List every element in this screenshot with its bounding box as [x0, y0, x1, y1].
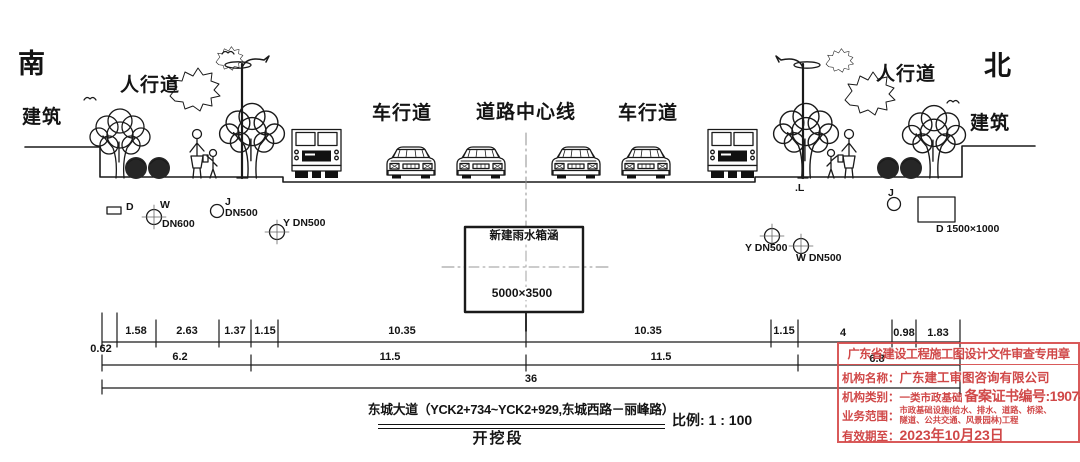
- tree-icon: [220, 103, 285, 178]
- stamp-org-value: 广东建工审图咨询有限公司: [900, 367, 1050, 386]
- dim-value: 0.62: [90, 344, 111, 356]
- stamp-class-value: 一类市政基础: [900, 390, 963, 405]
- dim-value: 10.35: [634, 326, 662, 338]
- car-icon: [457, 147, 505, 179]
- dim-value: 11.5: [380, 352, 401, 364]
- bush-icon: [125, 157, 170, 179]
- culvert-size: 5000×3500: [490, 287, 554, 300]
- label-sidewalk-right: 人行道: [876, 65, 936, 85]
- car-icon: [387, 147, 435, 179]
- car-icon: [622, 147, 670, 179]
- utility-label-y-left: Y DN500: [283, 218, 325, 229]
- stamp-valid-label: 有效期至：: [842, 428, 900, 444]
- bird-icon: [222, 51, 234, 54]
- utility-label-w-right: W DN500: [796, 253, 842, 264]
- truck-icon: [708, 130, 757, 179]
- utility-label-d-left: D: [126, 202, 134, 213]
- tree-icon: [774, 103, 839, 178]
- label-building-left: 建筑: [22, 108, 62, 128]
- bird-icon: [84, 97, 96, 100]
- dim-value: 2.63: [176, 326, 197, 338]
- label-roadway-right: 车行道: [618, 104, 678, 124]
- drawing-subtitle: 开挖段: [472, 431, 523, 447]
- review-stamp: 广东省建设工程施工图设计文件审查专用章 机构名称： 广东建工审图咨询有限公司 机…: [837, 342, 1080, 443]
- stamp-cert-number: 备案证书编号:19074: [965, 386, 1080, 406]
- car-icon: [552, 147, 600, 179]
- utility-size-j-left: DN500: [225, 208, 258, 219]
- utility-j-marker: [888, 198, 901, 211]
- compass-north: 北: [984, 52, 1011, 80]
- streetlight-icon: [776, 56, 820, 178]
- culvert-name: 新建雨水箱涵: [488, 230, 561, 242]
- truck-icon: [292, 130, 341, 179]
- branch-scribble: [216, 47, 244, 71]
- utility-label-l-right: .L: [795, 183, 804, 194]
- branch-scribble: [826, 49, 854, 73]
- dim-value: 1.15: [773, 326, 794, 338]
- dim-value: 0.98: [893, 328, 914, 340]
- child-icon: [827, 150, 837, 179]
- label-sidewalk-left: 人行道: [120, 76, 180, 96]
- drawing-scale: 比例: 1 : 100: [672, 413, 752, 428]
- dim-value: 1.37: [224, 326, 245, 338]
- child-icon: [207, 150, 217, 179]
- dim-value: 10.35: [388, 326, 416, 338]
- utility-label-d-right: D 1500×1000: [936, 224, 999, 235]
- stamp-valid-date: 2023年10月23日: [900, 425, 1004, 445]
- utility-label-w-left: W: [160, 200, 170, 211]
- utility-label-j-right: J: [888, 188, 894, 199]
- dim-value: 1.58: [125, 326, 146, 338]
- compass-south: 南: [18, 50, 45, 78]
- bird-icon: [947, 100, 959, 103]
- utility-size-w-left: DN600: [162, 219, 195, 230]
- dim-value: 36: [525, 374, 537, 386]
- title-underline: [378, 424, 665, 429]
- stamp-class-label: 机构类别：: [842, 389, 900, 405]
- road-cross-section-drawing: 南 北 建筑 人行道 车行道 道路中心线 车行道 人行道 建筑 新建雨水箱涵 5…: [0, 0, 1080, 462]
- stamp-title: 广东省建设工程施工图设计文件审查专用章: [839, 344, 1078, 365]
- stamp-org-label: 机构名称：: [842, 370, 900, 386]
- dim-value: 1.83: [927, 328, 948, 340]
- utility-duct-symbol: [918, 197, 955, 222]
- utility-j-marker: [211, 205, 224, 218]
- dim-value: 4: [840, 328, 846, 340]
- person-icon: [838, 130, 856, 179]
- utility-label-y-right: Y DN500: [745, 243, 787, 254]
- stamp-scope-line2: 隧道、公共交通、风景园林)工程: [900, 416, 1052, 426]
- stamp-scope-label: 业务范围：: [842, 408, 900, 424]
- bush-icon: [877, 157, 922, 179]
- dim-value: 11.5: [651, 352, 672, 364]
- label-building-right: 建筑: [970, 114, 1010, 134]
- utility-duct-symbol: [107, 207, 121, 214]
- person-icon: [190, 130, 208, 179]
- label-roadway-left: 车行道: [372, 104, 432, 124]
- dim-value: 6.2: [172, 352, 187, 364]
- drawing-title: 东城大道（YCK2+734~YCK2+929,东城西路－丽峰路）: [368, 403, 675, 416]
- label-road-centerline: 道路中心线: [476, 103, 576, 123]
- dim-value: 1.15: [254, 326, 275, 338]
